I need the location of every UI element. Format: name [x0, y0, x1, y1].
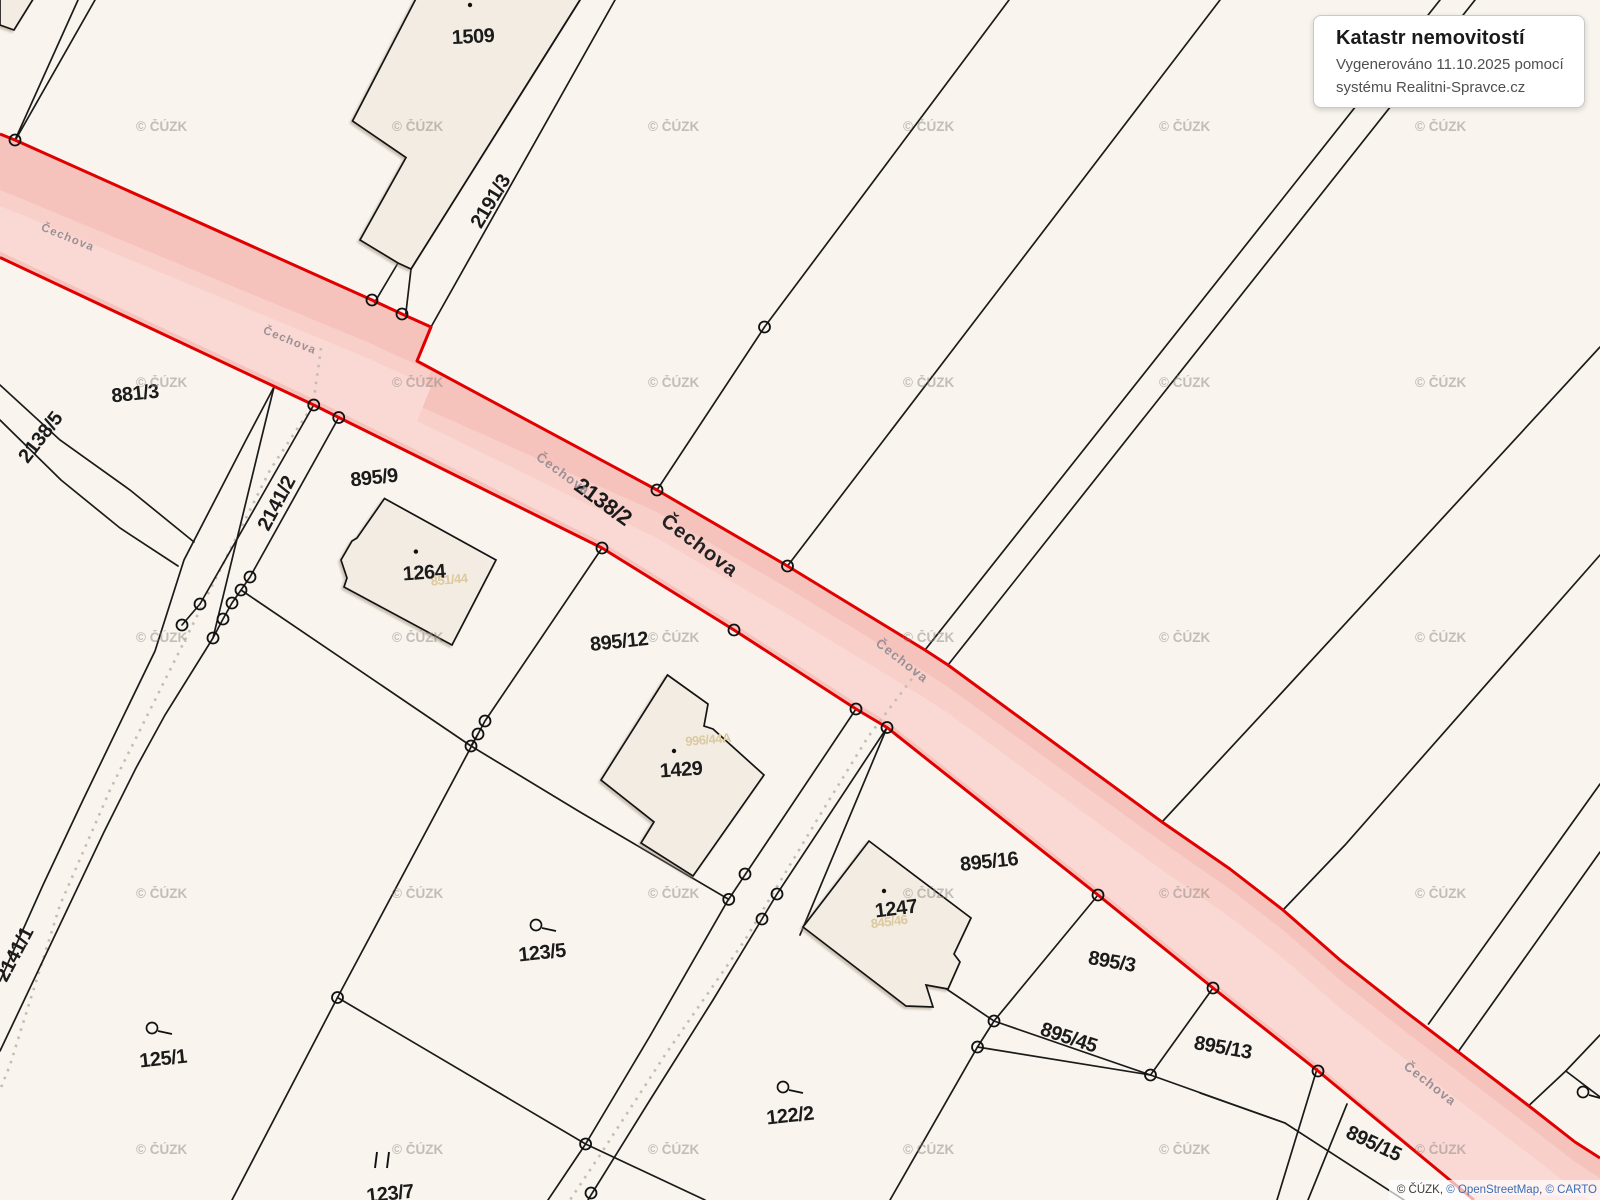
svg-text:© ČÚZK: © ČÚZK — [648, 1142, 699, 1157]
svg-text:© ČÚZK: © ČÚZK — [1159, 1142, 1210, 1157]
svg-text:© ČÚZK: © ČÚZK — [648, 375, 699, 390]
svg-text:© ČÚZK: © ČÚZK — [1415, 375, 1466, 390]
svg-text:© ČÚZK: © ČÚZK — [392, 1142, 443, 1157]
svg-text:© ČÚZK: © ČÚZK — [903, 375, 954, 390]
svg-text:© ČÚZK: © ČÚZK — [392, 630, 443, 645]
svg-text:© ČÚZK: © ČÚZK — [648, 119, 699, 134]
svg-text:© ČÚZK: © ČÚZK — [392, 375, 443, 390]
svg-text:© ČÚZK: © ČÚZK — [136, 886, 187, 901]
svg-text:© ČÚZK: © ČÚZK — [903, 1142, 954, 1157]
svg-text:© ČÚZK: © ČÚZK — [903, 630, 954, 645]
svg-text:© ČÚZK: © ČÚZK — [1415, 1142, 1466, 1157]
svg-text:© ČÚZK: © ČÚZK — [1415, 119, 1466, 134]
svg-text:© ČÚZK: © ČÚZK — [392, 886, 443, 901]
svg-text:1264: 1264 — [402, 560, 447, 585]
svg-text:© ČÚZK: © ČÚZK — [136, 119, 187, 134]
svg-text:© ČÚZK: © ČÚZK — [136, 1142, 187, 1157]
svg-text:© ČÚZK: © ČÚZK — [392, 119, 443, 134]
svg-text:© ČÚZK: © ČÚZK — [1159, 630, 1210, 645]
svg-text:© ČÚZK: © ČÚZK — [136, 375, 187, 390]
svg-text:© ČÚZK: © ČÚZK — [648, 886, 699, 901]
svg-text:© ČÚZK: © ČÚZK — [1159, 886, 1210, 901]
svg-text:1429: 1429 — [659, 758, 703, 783]
svg-text:© ČÚZK: © ČÚZK — [136, 630, 187, 645]
svg-text:© ČÚZK: © ČÚZK — [648, 630, 699, 645]
svg-text:© ČÚZK: © ČÚZK — [1159, 119, 1210, 134]
svg-text:© ČÚZK: © ČÚZK — [1415, 630, 1466, 645]
svg-text:© ČÚZK: © ČÚZK — [903, 886, 954, 901]
svg-text:© ČÚZK: © ČÚZK — [1159, 375, 1210, 390]
svg-text:© ČÚZK: © ČÚZK — [903, 119, 954, 134]
svg-text:1509: 1509 — [451, 25, 495, 49]
svg-text:© ČÚZK: © ČÚZK — [1415, 886, 1466, 901]
